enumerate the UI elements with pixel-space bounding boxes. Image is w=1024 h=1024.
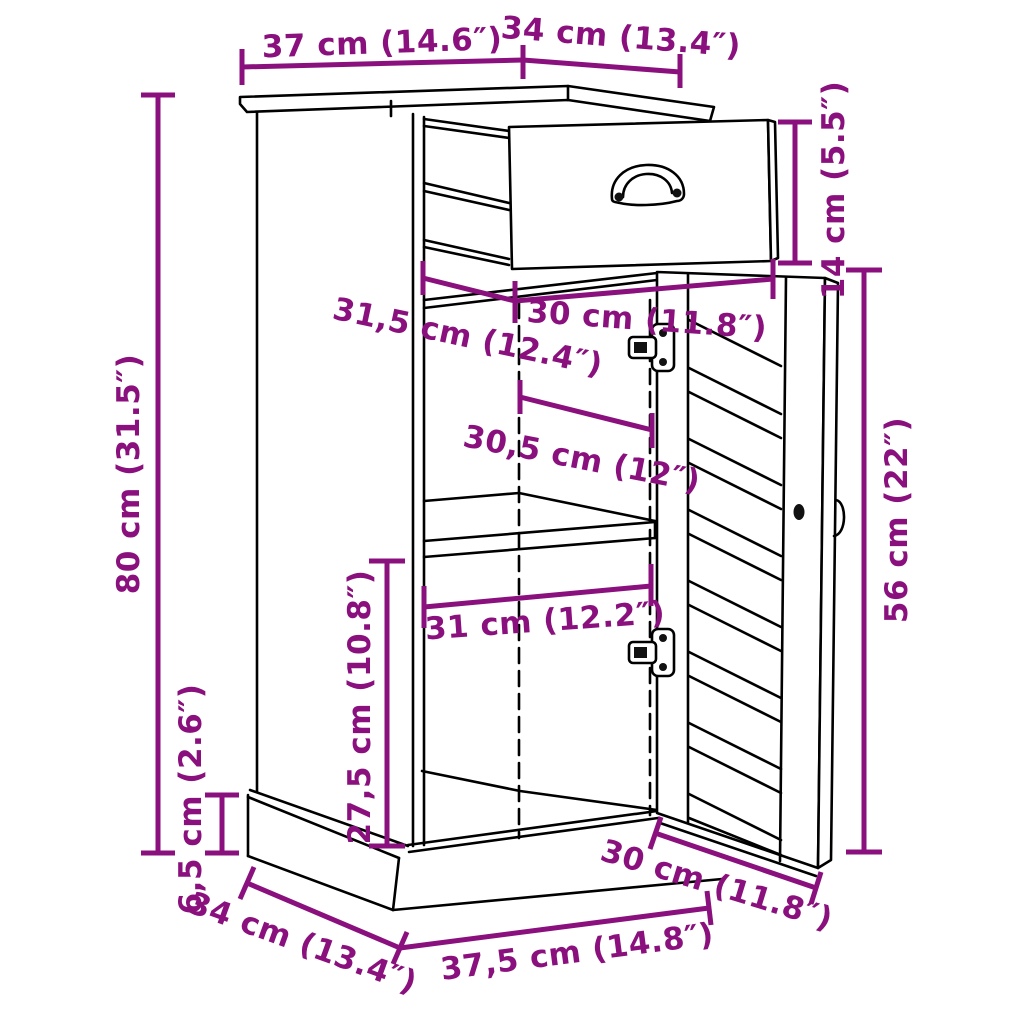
dimension-label-door-height: 56 cm (22″) — [879, 417, 915, 623]
dimension-label-interior-height: 27,5 cm (10.8″) — [342, 570, 378, 845]
door-knob-icon — [794, 504, 805, 520]
shelf — [424, 493, 655, 557]
dimension-label-top-depth: 34 cm (13.4″) — [500, 10, 743, 65]
door-hinge-bottom-icon — [629, 629, 674, 676]
dimension-label-top-width: 37 cm (14.6″) — [261, 21, 503, 65]
cabinet-line-art — [240, 86, 844, 910]
drawer — [424, 119, 778, 269]
louvered-door — [629, 272, 844, 876]
dimension-plinth-height: 6,5 cm (2.6″) — [173, 684, 239, 915]
dimension-interior-width: 31 cm (12.2″) — [424, 564, 667, 648]
dimension-top-depth: 34 cm (13.4″) — [500, 10, 743, 88]
dimension-overall-height: 80 cm (31.5″) — [111, 95, 175, 853]
top-panel — [240, 86, 714, 121]
diagram-canvas: 37 cm (14.6″) 34 cm (13.4″) 80 cm (31.5″… — [0, 0, 1024, 1024]
product-diagram-svg: 37 cm (14.6″) 34 cm (13.4″) 80 cm (31.5″… — [0, 0, 1024, 1024]
dimension-door-height: 56 cm (22″) — [846, 270, 915, 852]
dimension-label-overall-height: 80 cm (31.5″) — [111, 354, 147, 595]
dimension-drawer-height: 14 cm (5.5″) — [778, 81, 852, 300]
dimension-label-plinth-height: 6,5 cm (2.6″) — [173, 684, 209, 915]
dimension-base-depth: 34 cm (13.4″) — [183, 867, 421, 1001]
handle-screw-right-icon — [673, 189, 682, 198]
dimension-interior-height: 27,5 cm (10.8″) — [342, 561, 405, 846]
handle-screw-left-icon — [615, 193, 624, 202]
dimension-label-drawer-height: 14 cm (5.5″) — [816, 81, 852, 300]
dimension-top-width: 37 cm (14.6″) — [242, 21, 523, 85]
